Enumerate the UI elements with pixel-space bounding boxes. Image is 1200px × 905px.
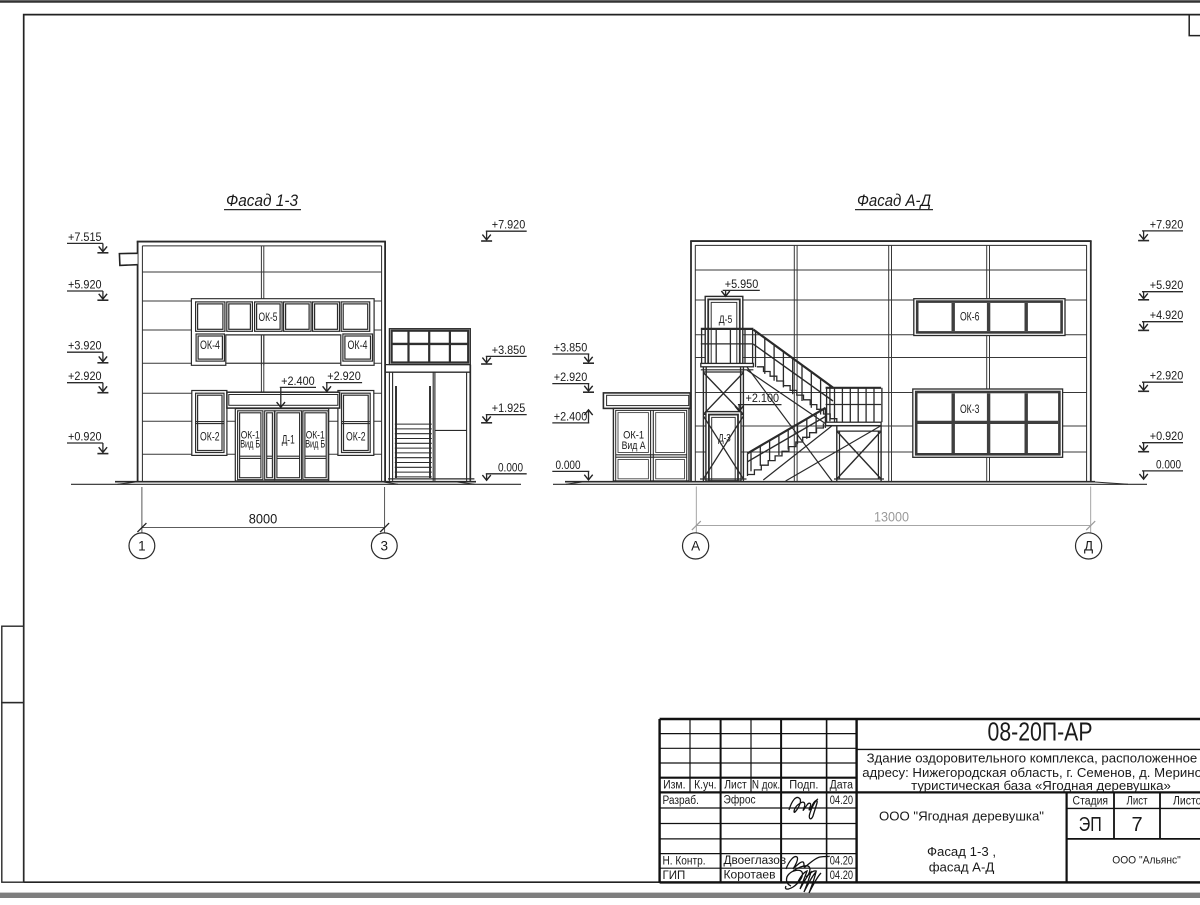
svg-text:Лист: Лист	[1127, 796, 1149, 808]
svg-text:Д-5: Д-5	[719, 314, 733, 326]
svg-text:+3.850: +3.850	[492, 343, 526, 357]
svg-text:Вид Б: Вид Б	[305, 438, 325, 450]
svg-text:+7.920: +7.920	[1150, 217, 1184, 231]
svg-text:+7.920: +7.920	[492, 218, 526, 232]
svg-text:Фасад 1-3: Фасад 1-3	[226, 192, 299, 210]
svg-text:+3.850: +3.850	[554, 341, 588, 355]
svg-text:ОК-5: ОК-5	[259, 310, 278, 324]
svg-text:04.20: 04.20	[830, 870, 853, 882]
svg-text:1: 1	[138, 539, 146, 554]
svg-text:Лист: Лист	[724, 780, 747, 792]
svg-text:04.20: 04.20	[830, 795, 853, 807]
svg-text:ОК-4: ОК-4	[348, 338, 368, 352]
svg-text:туристическая база «Ягодная де: туристическая база «Ягодная деревушка»	[911, 778, 1171, 793]
svg-text:ООО "Ягодная деревушка": ООО "Ягодная деревушка"	[879, 809, 1044, 824]
svg-text:0.000: 0.000	[1156, 457, 1181, 471]
svg-text:Фасад А-Д: Фасад А-Д	[857, 192, 931, 210]
svg-text:+2.100: +2.100	[746, 391, 780, 405]
svg-text:+2.920: +2.920	[327, 369, 361, 383]
svg-text:7: 7	[1131, 814, 1142, 836]
svg-text:Подп.: Подп.	[789, 780, 818, 792]
svg-text:+3.920: +3.920	[68, 339, 102, 353]
svg-text:13000: 13000	[874, 509, 909, 525]
svg-text:+2.920: +2.920	[1150, 369, 1184, 383]
svg-text:Дата: Дата	[830, 780, 854, 792]
svg-text:ОК-3: ОК-3	[960, 402, 980, 416]
svg-text:+0.920: +0.920	[1150, 429, 1184, 443]
svg-text:N док.: N док.	[752, 780, 780, 792]
svg-text:Д: Д	[1084, 539, 1093, 554]
svg-text:Вид Б: Вид Б	[240, 438, 260, 450]
svg-text:Коротаев: Коротаев	[724, 870, 776, 882]
svg-text:+2.400: +2.400	[554, 409, 588, 423]
svg-text:04.20: 04.20	[830, 856, 853, 868]
svg-text:+2.920: +2.920	[554, 370, 588, 384]
svg-text:0.000: 0.000	[498, 460, 523, 474]
svg-text:К.уч.: К.уч.	[694, 780, 716, 792]
svg-text:Н. Контр.: Н. Контр.	[663, 855, 706, 867]
svg-text:ОК-2: ОК-2	[200, 430, 220, 444]
svg-text:Д-1: Д-1	[282, 432, 295, 446]
svg-text:Двоеглазов: Двоеглазов	[724, 855, 787, 867]
svg-text:0.000: 0.000	[556, 458, 581, 472]
svg-text:+2.400: +2.400	[281, 374, 315, 388]
svg-text:фасад А-Д: фасад А-Д	[929, 860, 995, 875]
svg-text:+7.515: +7.515	[68, 230, 102, 244]
svg-text:8000: 8000	[249, 511, 278, 527]
svg-text:Фасад 1-3 ,: Фасад 1-3 ,	[927, 844, 996, 859]
svg-text:+1.925: +1.925	[492, 401, 526, 415]
svg-text:08-20П-АР: 08-20П-АР	[988, 717, 1093, 747]
svg-text:Стадия: Стадия	[1073, 796, 1109, 808]
svg-text:ОК-6: ОК-6	[960, 310, 980, 324]
svg-text:Листов: Листов	[1173, 796, 1200, 808]
svg-text:ГИП: ГИП	[663, 870, 686, 882]
svg-text:+5.920: +5.920	[1150, 278, 1184, 292]
svg-text:Изм.: Изм.	[663, 780, 685, 792]
svg-text:+4.920: +4.920	[1150, 308, 1184, 322]
svg-text:Вид А: Вид А	[622, 440, 647, 452]
svg-text:ОК-2: ОК-2	[346, 430, 366, 444]
svg-text:Разраб.: Разраб.	[663, 795, 699, 807]
svg-text:Здание оздоровительного компле: Здание оздоровительного комплекса, распо…	[867, 751, 1200, 766]
svg-text:3: 3	[381, 539, 389, 554]
svg-text:ООО "Альянс": ООО "Альянс"	[1112, 855, 1181, 867]
svg-text:ОК-4: ОК-4	[200, 338, 220, 352]
svg-text:Эфрос: Эфрос	[724, 794, 756, 806]
svg-text:+2.920: +2.920	[68, 369, 102, 383]
svg-text:+5.950: +5.950	[725, 277, 759, 291]
svg-text:А: А	[691, 539, 700, 554]
svg-text:+5.920: +5.920	[68, 278, 102, 292]
svg-text:ЭП: ЭП	[1079, 814, 1102, 836]
svg-text:+0.920: +0.920	[68, 430, 102, 444]
